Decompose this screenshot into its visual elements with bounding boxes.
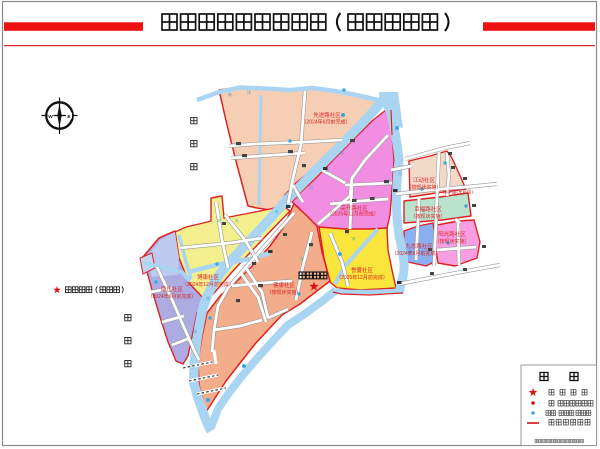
svg-text:串: 串 <box>340 149 344 155</box>
svg-text:（2024年6月前完成）: （2024年6月前完成） <box>392 250 441 257</box>
svg-text:誉蔓社区: 誉蔓社区 <box>351 266 374 274</box>
svg-text:（按现状实施）: （按现状实施） <box>266 289 301 296</box>
svg-text:阳光路社区: 阳光路社区 <box>438 230 466 238</box>
svg-text:W: W <box>48 114 53 120</box>
svg-text:场: 场 <box>193 328 197 334</box>
svg-text:（2025年12月前完成）: （2025年12月前完成） <box>336 274 388 281</box>
svg-text:新: 新 <box>228 91 232 97</box>
svg-text:河: 河 <box>190 363 194 369</box>
svg-text:幸福路社区: 幸福路社区 <box>414 205 442 213</box>
svg-text:沟: 沟 <box>300 256 304 261</box>
svg-text:健康社区: 健康社区 <box>273 281 296 289</box>
svg-text:九总路社区: 九总路社区 <box>405 242 433 250</box>
svg-text:博康社区: 博康社区 <box>197 273 220 281</box>
svg-text:河: 河 <box>275 209 279 214</box>
svg-text:沟: 沟 <box>235 218 239 223</box>
svg-text:（2024年6月前完成）: （2024年6月前完成） <box>148 293 197 300</box>
svg-text:洋: 洋 <box>247 89 251 95</box>
svg-text:（按现状实施）: （按现状实施） <box>434 238 469 245</box>
svg-text:康庄社区: 康庄社区 <box>161 285 184 293</box>
svg-text:（2024年12月前完成）: （2024年12月前完成） <box>182 281 234 288</box>
svg-text:先进路社区: 先进路社区 <box>313 111 341 119</box>
svg-text:河: 河 <box>217 218 221 223</box>
svg-text:（2025年12月前完成）: （2025年12月前完成） <box>327 211 379 218</box>
svg-text:（按现状实施）: （按现状实施） <box>406 184 441 191</box>
svg-text:纬中路(东延段): 纬中路(东延段) <box>443 189 473 196</box>
svg-text:河: 河 <box>398 170 402 176</box>
svg-text:串: 串 <box>206 295 210 301</box>
svg-text:河: 河 <box>352 236 356 241</box>
svg-text:河: 河 <box>309 184 313 190</box>
svg-text:江动社区: 江动社区 <box>413 176 436 184</box>
svg-text:（2024年6月前完成）: （2024年6月前完成） <box>302 119 351 126</box>
svg-text:（按现状实施）: （按现状实施） <box>410 213 445 220</box>
